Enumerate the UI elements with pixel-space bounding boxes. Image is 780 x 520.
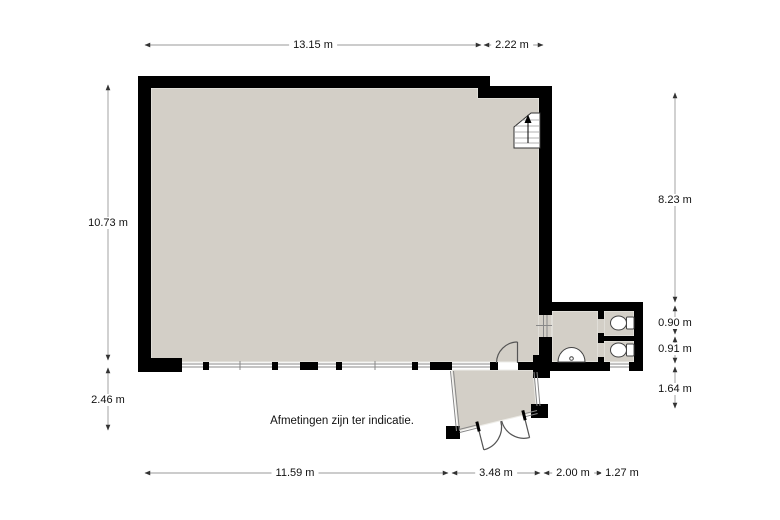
dimension-label-top-2: 2.22 m — [491, 39, 533, 51]
dimension-label-top-1: 13.15 m — [289, 39, 337, 51]
dimension-label-bottom-1: 11.59 m — [272, 467, 319, 479]
dimension-label-bottom-4: 1.27 m — [601, 467, 643, 479]
dimension-label-right-1: 8.23 m — [654, 194, 696, 206]
dimension-label-left-1: 10.73 m — [84, 217, 132, 229]
vestibule-floor — [452, 370, 537, 431]
main-room-floor — [151, 88, 539, 362]
wc-window — [610, 364, 629, 367]
toilet-icon — [611, 343, 635, 357]
dimension-label-bottom-3: 2.00 m — [552, 467, 594, 479]
dimension-label-right-3: 0.91 m — [654, 343, 696, 355]
dimension-label-right-4: 1.64 m — [654, 383, 696, 395]
wc-door-gap — [598, 343, 604, 357]
floor-areas — [151, 88, 634, 431]
dimension-label-bottom-2: 3.48 m — [475, 467, 517, 479]
floorplan-drawing — [0, 0, 780, 520]
note-dimensions-indicative: Afmetingen zijn ter indicatie. — [270, 415, 414, 427]
dimension-label-left-2: 2.46 m — [87, 394, 129, 406]
toilet-icon — [611, 316, 635, 330]
wc-door-gap — [598, 319, 604, 333]
dimension-label-right-2: 0.90 m — [654, 317, 696, 329]
floorplan-canvas: 13.15 m 2.22 m 10.73 m 2.46 m 8.23 m 0.9… — [0, 0, 780, 520]
